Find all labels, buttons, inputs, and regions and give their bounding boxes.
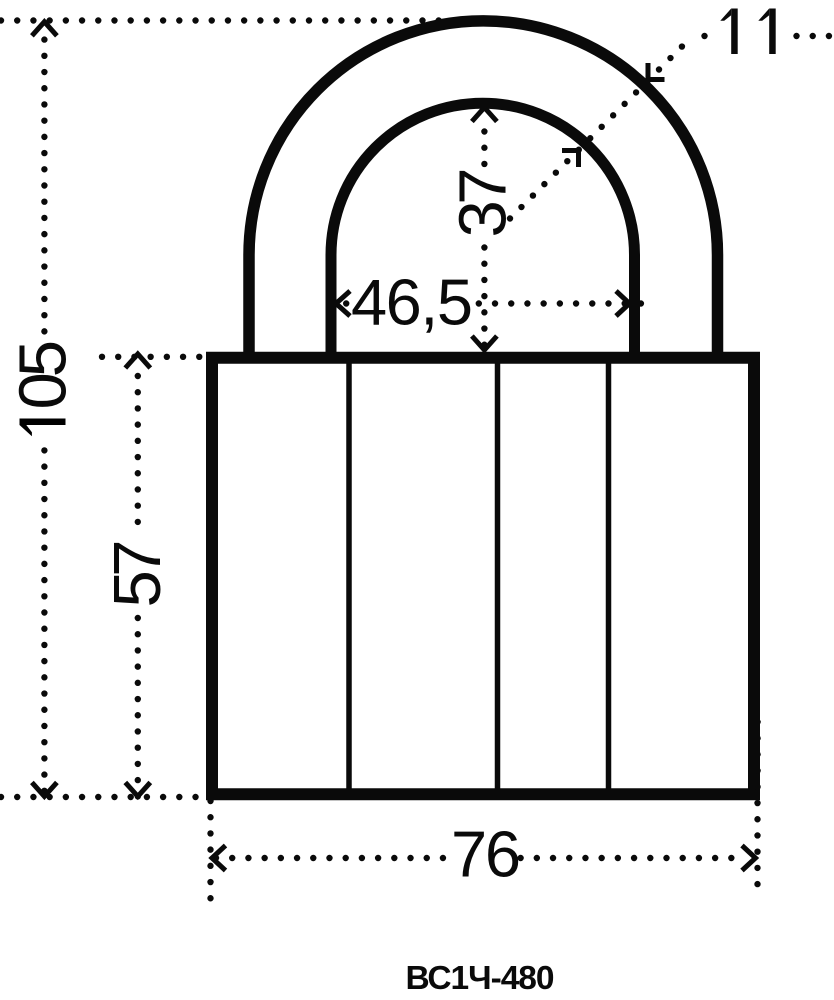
svg-text:57: 57 xyxy=(100,540,175,608)
svg-text:05: 05 xyxy=(6,340,81,410)
svg-text:37: 37 xyxy=(446,168,521,238)
svg-text:46,5: 46,5 xyxy=(351,266,473,339)
svg-text:76: 76 xyxy=(451,818,521,891)
svg-text:ВС1Ч-480: ВС1Ч-480 xyxy=(406,960,555,997)
